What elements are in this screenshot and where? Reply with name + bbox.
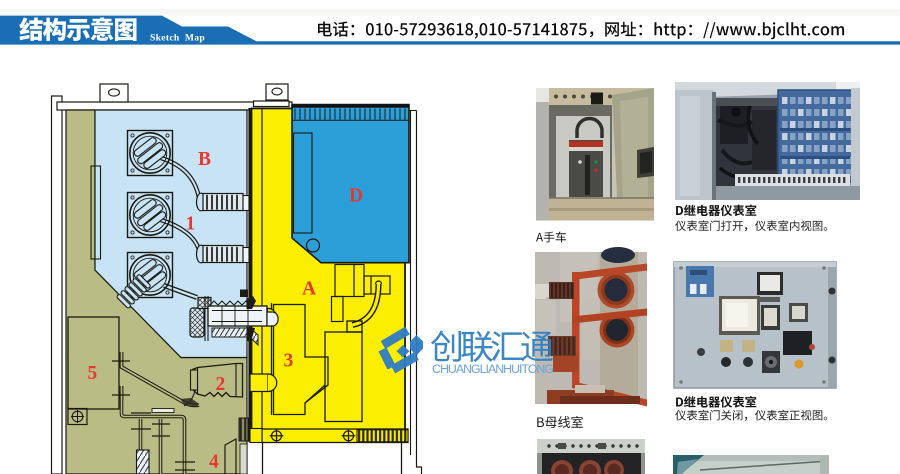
svg-text:3: 3 (284, 351, 294, 372)
svg-text:D: D (349, 186, 363, 207)
svg-text:CHUANGLIANHUITONG: CHUANGLIANHUITONG (432, 362, 553, 376)
svg-text:B: B (198, 149, 211, 170)
svg-text:2: 2 (216, 374, 226, 395)
svg-text:5: 5 (88, 363, 98, 384)
svg-text:Sketch Map: Sketch Map (150, 32, 205, 43)
svg-text:1: 1 (186, 214, 196, 235)
svg-text:4: 4 (209, 452, 219, 473)
svg-text:A: A (302, 279, 316, 300)
